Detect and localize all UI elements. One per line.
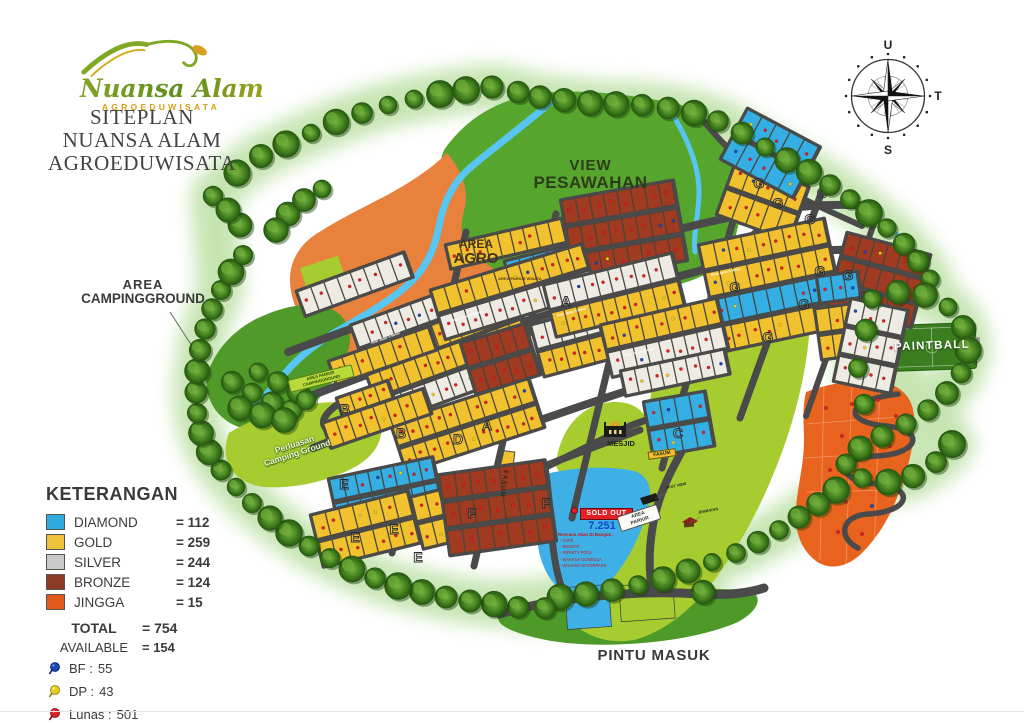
plot-cell: [514, 464, 531, 489]
block-letter: A: [482, 417, 492, 433]
block-letter: B: [396, 425, 406, 441]
legend-pin-dp: DP :43: [46, 681, 286, 702]
plot-cell: [488, 495, 505, 520]
silver-swatch: [46, 554, 65, 570]
bronze-swatch: [46, 574, 65, 590]
status-pin: [876, 398, 880, 402]
jingga-swatch: [46, 594, 65, 610]
plot-cell: [507, 521, 524, 546]
block-letter: G: [843, 267, 854, 283]
block-letter: G: [805, 211, 816, 227]
legend-panel: KETERANGAN DIAMOND= 112 GOLD= 259 SILVER…: [46, 484, 286, 724]
plot-cell: [537, 517, 554, 542]
legend-count: = 112: [176, 515, 209, 530]
plot-cell: [492, 523, 509, 548]
legend-item-diamond: DIAMOND= 112: [46, 512, 286, 532]
block-letter: A: [561, 293, 571, 309]
legend-item-gold: GOLD= 259: [46, 532, 286, 552]
block-letter: G: [773, 195, 784, 211]
compass-east-label: T: [934, 89, 942, 103]
plot-cell: [518, 491, 535, 516]
logo-script-text: Nuansa Alam: [79, 74, 262, 103]
plot-cell: [448, 529, 465, 554]
status-pin: [870, 504, 874, 508]
block-letter: G: [799, 296, 810, 312]
legend-available-row: AVAILABLE= 154: [46, 638, 286, 656]
available-label: AVAILABLE: [46, 640, 142, 655]
legend-count: = 15: [176, 595, 203, 610]
logo-roof-gold: [91, 50, 144, 76]
plot-block: [437, 458, 559, 558]
total-value: = 754: [142, 620, 177, 636]
block-letter: E: [339, 476, 348, 492]
page-edge-line: [0, 711, 1024, 712]
bf-label: BF :: [69, 661, 93, 676]
siteplan-canvas: AABBCCDEEEEFFGGGGGGGGGG Row Jalan 5 Mete…: [0, 0, 1024, 724]
status-pin: [824, 406, 828, 410]
legend-item-bronze: BRONZE= 124: [46, 572, 286, 592]
legend-pin-bf: BF :55: [46, 658, 286, 679]
legend-count: = 259: [176, 535, 210, 550]
block-letter: G: [815, 263, 826, 279]
brand-logo: Nuansa Alam AGROEDUWISATA: [52, 36, 262, 114]
lunas-value: 501: [117, 707, 139, 722]
block-letter: F: [468, 505, 477, 521]
compass-north-label: U: [884, 38, 893, 52]
legend-item-jingga: JINGGA= 15: [46, 592, 286, 612]
block-letter: E: [413, 549, 422, 565]
block-letter: E: [389, 521, 398, 537]
block-letter: E: [350, 529, 359, 545]
status-pin: [860, 532, 864, 536]
status-pin: [840, 434, 844, 438]
legend-item-silver: SILVER= 244: [46, 552, 286, 572]
title-line-3: AGROEDUWISATA: [18, 152, 266, 175]
legend-count: = 124: [176, 575, 210, 590]
lunas-label: Lunas :: [69, 707, 112, 722]
bf-pin-icon: [48, 661, 61, 676]
compass-rose: U T S: [836, 22, 948, 168]
legend-pin-lunas: Lunas :501: [46, 704, 286, 724]
plot-cell: [478, 525, 495, 550]
legend-label: GOLD: [74, 535, 176, 550]
lunas-pin-icon: [48, 707, 61, 722]
title-line-1: SITEPLAN: [18, 106, 266, 129]
dp-pin-icon: [48, 684, 61, 699]
status-pin: [836, 530, 840, 534]
compass-south-label: S: [884, 143, 892, 157]
bf-value: 55: [98, 661, 112, 676]
legend-count: = 244: [176, 555, 210, 570]
diamond-swatch: [46, 514, 65, 530]
status-pin: [894, 414, 898, 418]
logo-leaf: [191, 43, 208, 58]
block-letter: D: [453, 431, 463, 447]
status-pin: [828, 468, 832, 472]
block-letter: G: [754, 175, 765, 191]
block-letter: F: [542, 495, 551, 511]
dp-value: 43: [99, 684, 113, 699]
legend-heading: KETERANGAN: [46, 484, 286, 505]
legend-label: JINGGA: [74, 595, 176, 610]
block-letter: C: [673, 425, 683, 441]
gold-swatch: [46, 534, 65, 550]
legend-label: DIAMOND: [74, 515, 176, 530]
block-letter: G: [763, 329, 774, 345]
status-pin: [850, 402, 854, 406]
plot-cell: [499, 466, 516, 491]
total-label: TOTAL: [46, 620, 142, 636]
page-title: SITEPLAN NUANSA ALAM AGROEDUWISATA: [18, 106, 266, 175]
title-line-2: NUANSA ALAM: [18, 129, 266, 152]
legend-label: BRONZE: [74, 575, 176, 590]
available-value: = 154: [142, 640, 175, 655]
plot-block: [642, 389, 717, 459]
block-letter: G: [730, 279, 741, 295]
legend-total-row: TOTAL= 754: [46, 618, 286, 638]
block-letter: B: [340, 401, 350, 417]
legend-label: SILVER: [74, 555, 176, 570]
dp-label: DP :: [69, 684, 94, 699]
logo-leaf-curl: [147, 41, 197, 65]
